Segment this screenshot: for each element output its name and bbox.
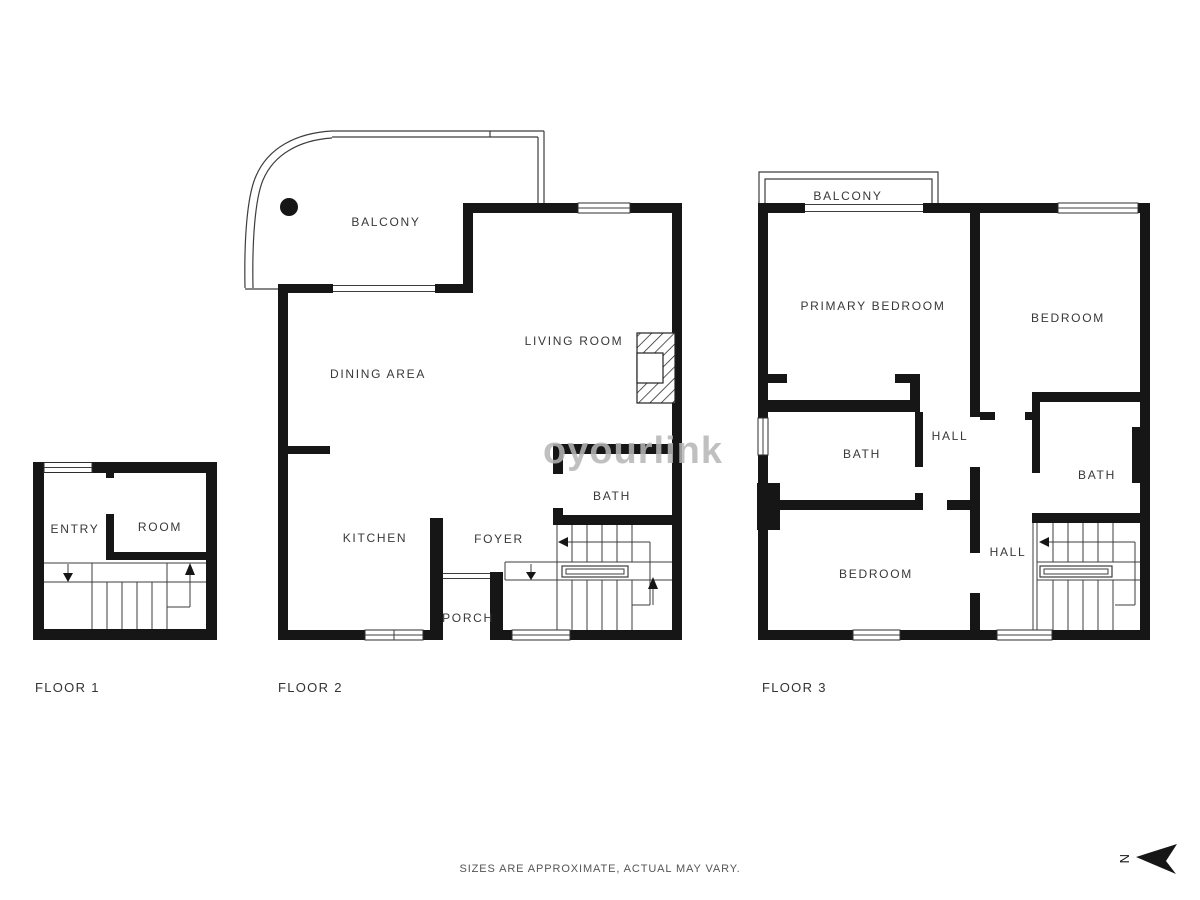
floor1-label: FLOOR 1 [35,680,100,695]
floor1-plan: ENTRY ROOM FLOOR 1 [33,462,217,695]
north-label: N [1117,854,1132,863]
room-label-porch: PORCH [442,611,494,625]
room-label-dining: DINING AREA [330,367,426,381]
stairs-up-arrow-icon [185,563,195,575]
floor2-label: FLOOR 2 [278,680,343,695]
room-label-bedroom: BEDROOM [1031,311,1105,325]
floorplan-svg: ENTRY ROOM FLOOR 1 [0,0,1200,900]
stairs-left-arrow-icon [558,537,568,547]
floor1-walls [33,462,217,640]
floor2-staircase [505,525,672,630]
stairs-down-arrow-icon [63,573,73,582]
stairs-left-arrow-icon [1039,537,1049,547]
room-label-balcony: BALCONY [351,215,420,229]
room-label-bath-left: BATH [843,447,881,461]
room-label-kitchen: KITCHEN [343,531,408,545]
disclaimer-text: SIZES ARE APPROXIMATE, ACTUAL MAY VARY. [459,863,740,875]
floor3-staircase [1033,523,1140,630]
room-label-bath: BATH [593,489,631,503]
room-label-bedroom-lower: BEDROOM [839,567,913,581]
floor3-label: FLOOR 3 [762,680,827,695]
room-label-primary-bedroom: PRIMARY BEDROOM [800,299,945,313]
room-label-hall-upper: HALL [932,429,969,443]
balcony-column-dot-icon [280,198,298,216]
floor2-plan: oyourlink BALCONY DINING AREA LIVING ROO… [245,131,723,695]
watermark-text: oyourlink [543,430,723,472]
room-label-balcony3: BALCONY [813,189,882,203]
room-label-entry: ENTRY [51,522,100,536]
room-label-room: ROOM [138,520,182,534]
stairs-down-arrow-icon [526,572,536,580]
room-label-living: LIVING ROOM [525,334,624,348]
north-arrow-icon [1136,844,1177,874]
room-label-hall-lower: HALL [990,545,1027,559]
north-compass-icon: N [1117,844,1177,874]
fireplace-icon [637,333,675,403]
floor1-staircase [44,563,206,629]
floorplan-canvas: ENTRY ROOM FLOOR 1 [0,0,1200,900]
floor1-windows [44,463,92,473]
room-label-foyer: FOYER [474,532,524,546]
room-label-bath-right: BATH [1078,468,1116,482]
floor3-plan: BALCONY PRIMARY BEDROOM BEDROOM BATH HAL… [757,172,1150,695]
